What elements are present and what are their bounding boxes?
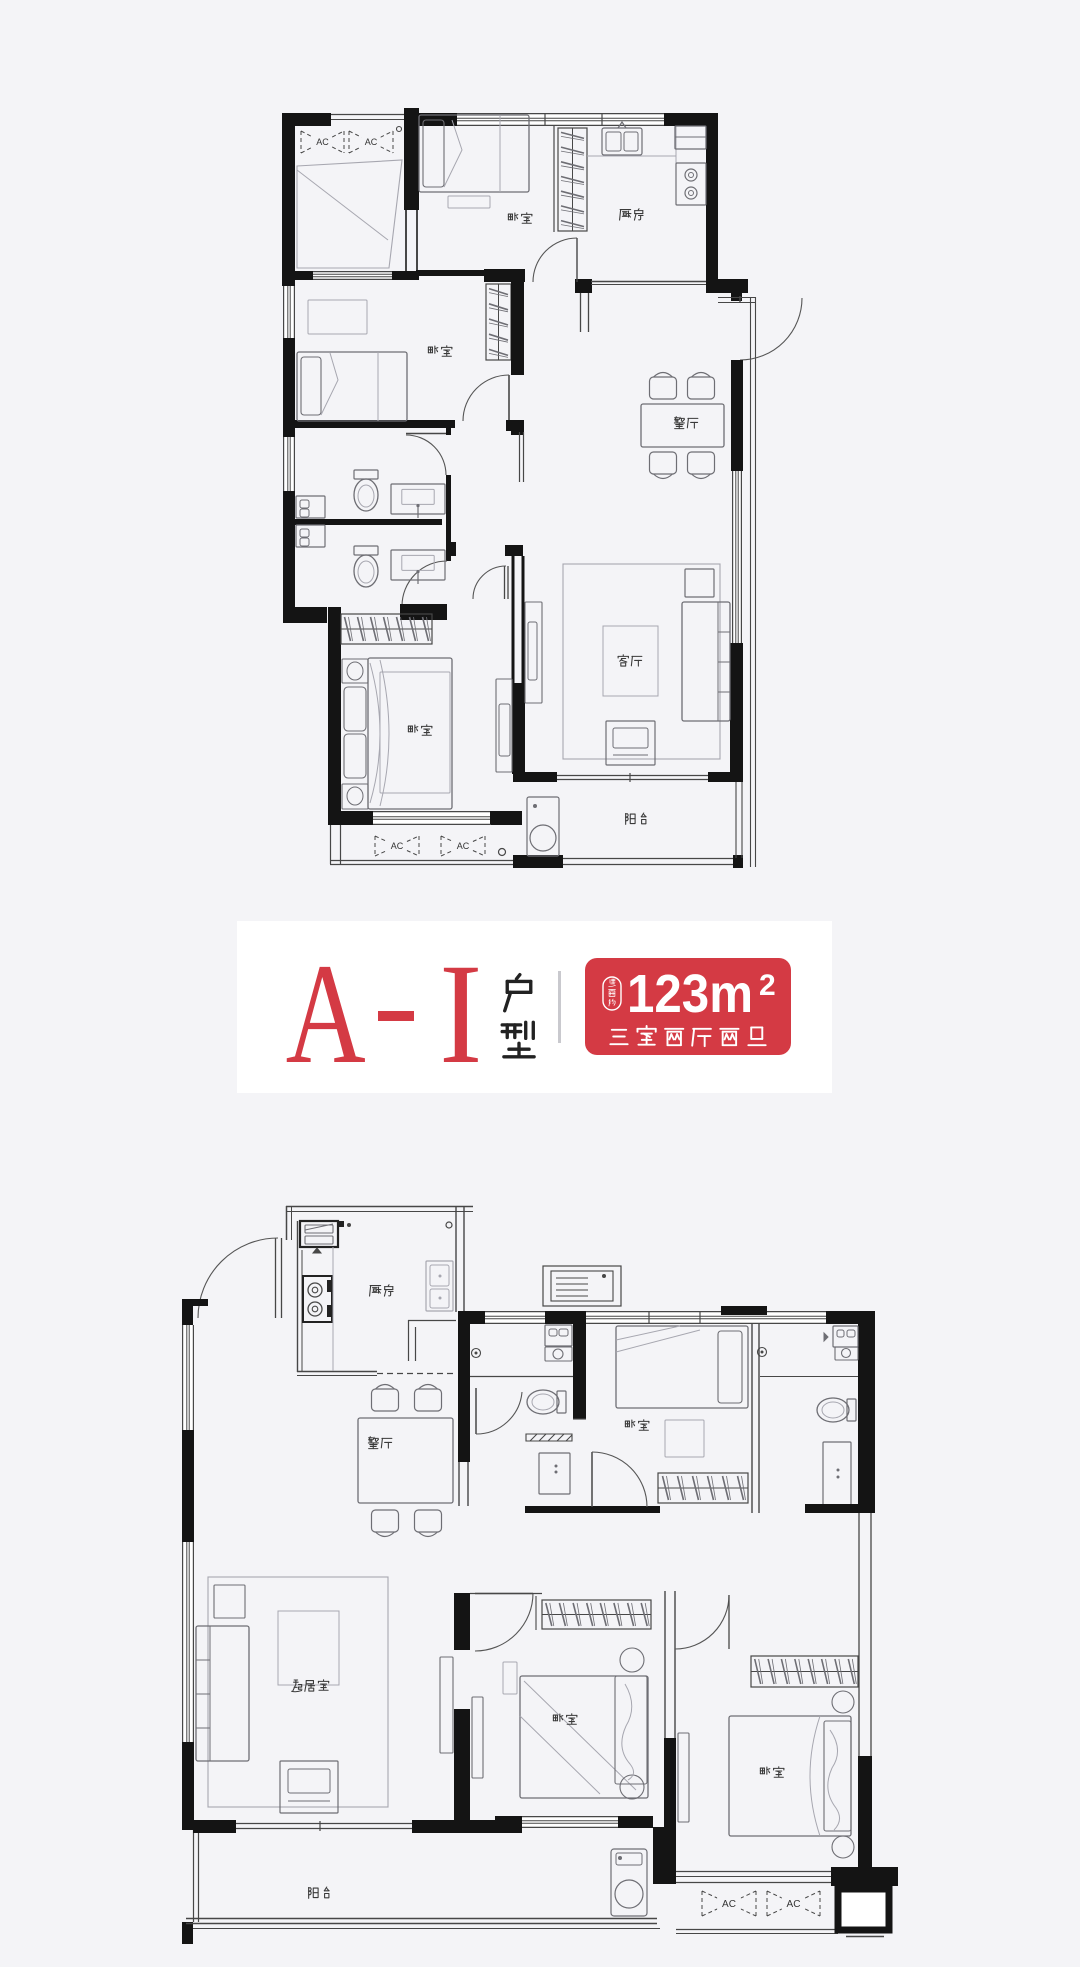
svg-text:AC: AC (316, 137, 329, 147)
svg-text:123m: 123m (627, 964, 753, 1024)
svg-text:AC: AC (391, 841, 404, 851)
svg-text:AC: AC (365, 137, 378, 147)
svg-text:AC: AC (787, 1899, 801, 1910)
svg-text:AC: AC (722, 1899, 736, 1910)
svg-text:I: I (439, 934, 482, 1094)
svg-text:2: 2 (759, 969, 776, 1002)
svg-text:A: A (286, 933, 366, 1093)
svg-text:AC: AC (457, 841, 470, 851)
